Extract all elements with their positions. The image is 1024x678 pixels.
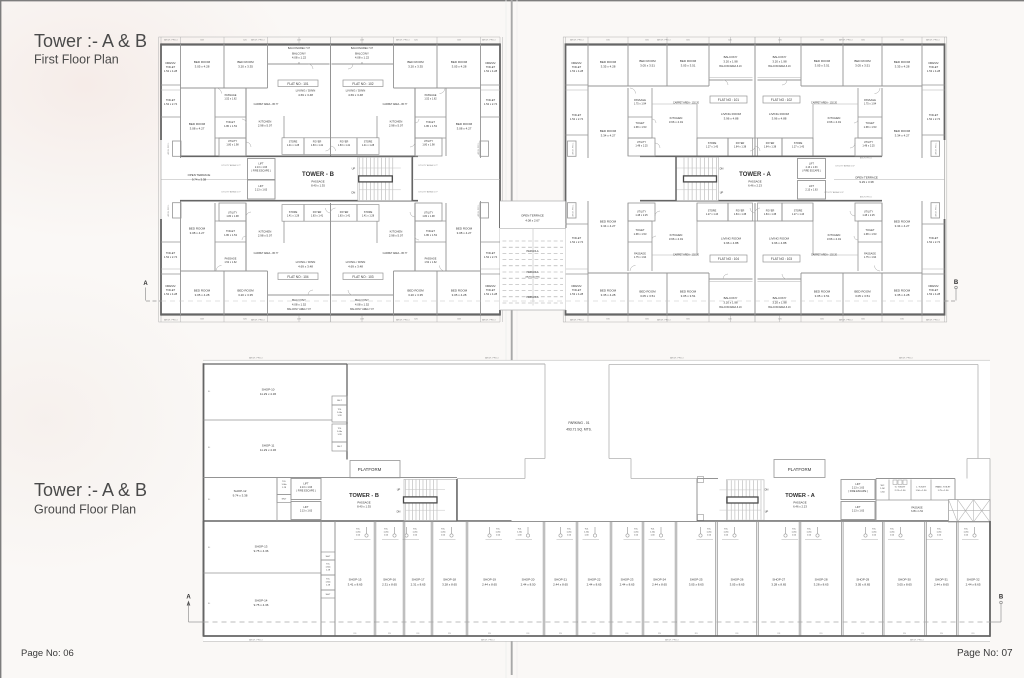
svg-text:BED ROOM3.34 x 4.27: BED ROOM3.34 x 4.27 [600, 220, 617, 228]
svg-text:BED ROOM3.05 x 4.28: BED ROOM3.05 x 4.28 [451, 60, 468, 68]
svg-text:ARCH. PROJ.: ARCH. PROJ. [485, 357, 499, 360]
svg-text:PASSAGE1.75 x 1.94: PASSAGE1.75 x 1.94 [864, 99, 877, 106]
svg-text:B: B [954, 280, 959, 286]
svg-text:SHOP-263.05 x 8.65: SHOP-263.05 x 8.65 [730, 578, 745, 587]
svg-text:SHOP-183.28 x 8.65: SHOP-183.28 x 8.65 [442, 578, 457, 587]
svg-text:BED ROOM3.20 x 3.35: BED ROOM3.20 x 3.35 [407, 60, 424, 68]
svg-text:LIVING ROOM3.96 x 4.88: LIVING ROOM3.96 x 4.88 [721, 237, 742, 245]
svg-text:ARCH. PROJ.: ARCH. PROJ. [164, 319, 178, 322]
svg-text:ARCH. PROJ.: ARCH. PROJ. [926, 39, 940, 42]
svg-text:SHOP-153.41 x 8.65: SHOP-153.41 x 8.65 [348, 578, 363, 587]
svg-text:LIVING / DINN4.69 x 3.48: LIVING / DINN4.69 x 3.48 [346, 260, 366, 268]
svg-text:63: 63 [361, 62, 363, 64]
svg-text:PLATFORM: PLATFORM [358, 467, 382, 472]
svg-text:6.46 x 2.23: 6.46 x 2.23 [748, 183, 762, 187]
svg-text:PERGOLA: PERGOLA [526, 271, 538, 274]
svg-text:ARCH. PROJ.: ARCH. PROJ. [860, 156, 872, 159]
svg-text:ARCH. PROJ.: ARCH. PROJ. [396, 319, 410, 322]
svg-text:KITCHEN3.66 x 4.01: KITCHEN3.66 x 4.01 [669, 116, 684, 124]
svg-text:SH-T: SH-T [326, 594, 331, 596]
svg-text:ARCH. PROJ.: ARCH. PROJ. [572, 142, 575, 154]
svg-text:KITCHEN2.98 x 5.07: KITCHEN2.98 x 5.07 [258, 120, 273, 128]
svg-text:SHOP-202.44 x 8.50: SHOP-202.44 x 8.50 [521, 578, 536, 587]
svg-text:Tower :- A & B: Tower :- A & B [34, 31, 147, 51]
svg-text:ARCH. PROJ.: ARCH. PROJ. [935, 204, 938, 216]
svg-text:Ground Floor Plan: Ground Floor Plan [34, 503, 136, 517]
svg-text:PASSAGE1.52 x 1.62: PASSAGE1.52 x 1.62 [224, 94, 237, 101]
svg-text:BED ROOM3.34 x 4.27: BED ROOM3.34 x 4.27 [600, 129, 617, 137]
svg-text:Tower :- A & B: Tower :- A & B [34, 480, 147, 500]
svg-text:BALCON/AREA 6.19: BALCON/AREA 6.19 [768, 65, 791, 68]
svg-text:BED ROOM3.05 x 3.51: BED ROOM3.05 x 3.51 [680, 290, 697, 298]
svg-text:PERGOLA: PERGOLA [526, 296, 538, 299]
svg-text:KITCHEN3.66 x 4.01: KITCHEN3.66 x 4.01 [827, 116, 842, 124]
svg-text:ARCH. PROJ.: ARCH. PROJ. [164, 39, 178, 42]
svg-text:4.08 x 1.22: 4.08 x 1.22 [355, 56, 370, 60]
svg-text:BED ROOM3.08 x 4.27: BED ROOM3.08 x 4.27 [456, 122, 473, 130]
svg-text:8.40 x 1.35: 8.40 x 1.35 [311, 183, 325, 187]
svg-text:LIVING ROOM3.96 x 4.88: LIVING ROOM3.96 x 4.88 [721, 112, 742, 120]
svg-text:6.46 x 2.23: 6.46 x 2.23 [793, 504, 807, 508]
svg-text:SH-T: SH-T [282, 499, 287, 501]
svg-text:TOWER - B: TOWER - B [302, 172, 335, 178]
svg-text:OPEN TERRACE: OPEN TERRACE [188, 173, 211, 177]
svg-text:ARCH. PROJ.: ARCH. PROJ. [167, 204, 170, 216]
svg-text:ARCH. PROJ.: ARCH. PROJ. [860, 195, 872, 198]
svg-text:SHOP-1011.29 x 4.36: SHOP-1011.29 x 4.36 [260, 388, 277, 397]
svg-text:4.08 x 1.52: 4.08 x 1.52 [292, 303, 307, 307]
svg-text:ARCH. PROJ.: ARCH. PROJ. [657, 319, 671, 322]
svg-text:BED ROOM3.08 x 4.27: BED ROOM3.08 x 4.27 [189, 227, 206, 235]
svg-text:ARCH. PROJ.: ARCH. PROJ. [249, 357, 263, 360]
svg-text:BED ROOM3.08 x 4.27: BED ROOM3.08 x 4.27 [456, 227, 473, 235]
svg-text:PASSAGE1.52 x 1.62: PASSAGE1.52 x 1.62 [424, 94, 437, 101]
svg-text:B4: B4 [208, 603, 210, 605]
svg-text:SH-T: SH-T [337, 400, 342, 402]
svg-text:SHOP-1111.29 x 4.36: SHOP-1111.29 x 4.36 [260, 444, 277, 453]
svg-text:KITCHEN2.98 x 5.07: KITCHEN2.98 x 5.07 [389, 120, 404, 128]
svg-text:BED ROOM3.05 x 3.51: BED ROOM3.05 x 3.51 [639, 290, 656, 298]
svg-text:ARCH. PROJ.: ARCH. PROJ. [926, 319, 940, 322]
svg-text:ARCH. PROJ.: ARCH. PROJ. [570, 319, 584, 322]
svg-text:PASSAGE6.95 x 1.52: PASSAGE6.95 x 1.52 [911, 507, 923, 514]
svg-text:ARCH. PROJ.: ARCH. PROJ. [482, 319, 496, 322]
svg-text:PERGOLA: PERGOLA [526, 250, 538, 253]
svg-text:BALCONY AREA 7.07: BALCONY AREA 7.07 [350, 308, 374, 311]
svg-text:PASSAGE1.52 x 1.62: PASSAGE1.52 x 1.62 [424, 257, 437, 264]
svg-text:9.29 x 3.38: 9.29 x 3.38 [859, 180, 874, 184]
svg-text:UP: UP [720, 191, 724, 195]
svg-text:DN: DN [352, 191, 356, 195]
svg-text:BED ROOM3.05 x 3.51: BED ROOM3.05 x 3.51 [680, 59, 697, 67]
svg-text:BED ROOM3.20 x 3.35: BED ROOM3.20 x 3.35 [237, 60, 254, 68]
svg-text:CARPET AREA - 102.20: CARPET AREA - 102.20 [673, 102, 700, 105]
svg-text:Page No: 06: Page No: 06 [21, 648, 74, 659]
svg-text:UTILITY AREA 3.77: UTILITY AREA 3.77 [221, 191, 241, 194]
svg-text:BED ROOM3.05 x 3.51: BED ROOM3.05 x 3.51 [854, 59, 871, 67]
svg-text:KITCHEN2.98 x 5.07: KITCHEN2.98 x 5.07 [258, 229, 273, 237]
svg-text:ARCH. PROJ.: ARCH. PROJ. [167, 142, 170, 154]
svg-text:CARPET AREA - 102.20: CARPET AREA - 102.20 [673, 254, 700, 257]
svg-text:ARCH. PROJ.: ARCH. PROJ. [396, 39, 410, 42]
svg-text:4.08 x 2.67: 4.08 x 2.67 [525, 219, 540, 223]
svg-text:3.20 x 1.98: 3.20 x 1.98 [723, 60, 738, 64]
svg-text:A: A [143, 281, 148, 287]
svg-text:KITCHEN3.66 x 4.01: KITCHEN3.66 x 4.01 [669, 233, 684, 241]
svg-text:BED ROOM3.05 x 3.51: BED ROOM3.05 x 3.51 [814, 59, 831, 67]
svg-text:BALCON/AREA 7.07: BALCON/AREA 7.07 [351, 47, 374, 50]
svg-text:KITCHEN3.66 x 4.01: KITCHEN3.66 x 4.01 [827, 233, 842, 241]
svg-text:FLAT NO : 104: FLAT NO : 104 [287, 275, 308, 279]
svg-text:FLAT NO : 102: FLAT NO : 102 [352, 82, 373, 86]
svg-text:BED ROOM3.05 x 3.51: BED ROOM3.05 x 3.51 [639, 59, 656, 67]
svg-text:ARCH. PROJ.: ARCH. PROJ. [570, 39, 584, 42]
svg-text:First Floor Plan: First Floor Plan [34, 53, 119, 67]
svg-text:ARCH. PROJ.: ARCH. PROJ. [657, 39, 671, 42]
svg-text:BALCON/AREA 6.19: BALCON/AREA 6.19 [719, 306, 742, 309]
svg-text:ARCH. PROJ.: ARCH. PROJ. [910, 638, 924, 641]
svg-text:(BURJ AL HR): (BURJ AL HR) [525, 276, 539, 279]
svg-text:BED ROOM3.05 x 3.51: BED ROOM3.05 x 3.51 [854, 290, 871, 298]
svg-text:FLAT NO : 102: FLAT NO : 102 [771, 98, 792, 102]
svg-text:BALCON/AREA 6.19: BALCON/AREA 6.19 [768, 306, 791, 309]
svg-text:63: 63 [298, 62, 300, 64]
svg-text:SHOP-222.44 x 8.65: SHOP-222.44 x 8.65 [587, 578, 602, 587]
svg-text:BED ROOM3.35 x 4.28: BED ROOM3.35 x 4.28 [894, 289, 911, 297]
svg-text:UTILITY AREA 3.77: UTILITY AREA 3.77 [418, 191, 438, 194]
svg-text:BED ROOM3.05 x 4.28: BED ROOM3.05 x 4.28 [451, 289, 468, 297]
svg-text:FLAT NO : 101: FLAT NO : 101 [718, 98, 739, 102]
svg-text:BED ROOM3.34 x 4.27: BED ROOM3.34 x 4.27 [894, 129, 911, 137]
svg-text:SHOP-149.75 x 4.36: SHOP-149.75 x 4.36 [254, 599, 269, 608]
svg-text:ARCH. PROJ.: ARCH. PROJ. [251, 39, 265, 42]
svg-text:TOWER - B: TOWER - B [349, 493, 379, 499]
svg-text:BED ROOM3.20 x 3.35: BED ROOM3.20 x 3.35 [407, 289, 424, 297]
svg-text:B: B [999, 595, 1004, 601]
svg-text:KITCHEN2.98 x 5.07: KITCHEN2.98 x 5.07 [389, 229, 404, 237]
svg-text:L. TOILET1.50 x 1.50: L. TOILET1.50 x 1.50 [916, 487, 928, 492]
svg-text:UP: UP [765, 510, 769, 514]
svg-text:ARCH. PROJ.: ARCH. PROJ. [477, 142, 480, 154]
svg-text:3.20 x 1.98: 3.20 x 1.98 [772, 60, 787, 64]
svg-text:Page No: 07: Page No: 07 [957, 648, 1013, 659]
svg-text:B4: B4 [208, 391, 210, 393]
svg-text:SHOP-172.31 x 8.65: SHOP-172.31 x 8.65 [411, 578, 426, 587]
svg-text:BALCONY: BALCONY [773, 296, 787, 300]
svg-text:A: A [186, 595, 191, 601]
svg-text:8.40 x 1.35: 8.40 x 1.35 [357, 504, 371, 508]
svg-text:UTILITY AREA 3.37: UTILITY AREA 3.37 [835, 165, 855, 168]
svg-text:PLATFORM: PLATFORM [788, 467, 812, 472]
svg-text:FLAT NO : 103: FLAT NO : 103 [352, 275, 373, 279]
svg-text:PASSAGE1.52 x 1.62: PASSAGE1.52 x 1.62 [224, 257, 237, 264]
svg-text:ARCH. PROJ.: ARCH. PROJ. [839, 39, 853, 42]
svg-text:TOWER - A: TOWER - A [785, 493, 815, 499]
svg-text:BALCONY: BALCONY [355, 298, 369, 302]
svg-text:PASSAGE1.75 x 1.94: PASSAGE1.75 x 1.94 [864, 252, 877, 259]
svg-text:ARCH. PROJ.: ARCH. PROJ. [251, 319, 265, 322]
svg-text:BALCONY: BALCONY [724, 55, 738, 59]
svg-text:SH-T: SH-T [337, 446, 342, 448]
svg-text:PASSAGE1.75 x 1.94: PASSAGE1.75 x 1.94 [634, 252, 647, 259]
svg-text:SH-T: SH-T [326, 556, 331, 558]
svg-text:BALCON/AREA 7.07: BALCON/AREA 7.07 [288, 47, 311, 50]
svg-text:SHOP-293.05 x 8.65: SHOP-293.05 x 8.65 [855, 578, 870, 587]
svg-text:4.08 x 1.22: 4.08 x 1.22 [292, 56, 307, 60]
svg-text:LIVING / DINN4.69 x 3.48: LIVING / DINN4.69 x 3.48 [296, 260, 316, 268]
svg-text:DN: DN [720, 166, 724, 170]
svg-text:BED ROOM3.34 x 4.27: BED ROOM3.34 x 4.27 [894, 220, 911, 228]
svg-text:G. TOILET2.74 x 1.50: G. TOILET2.74 x 1.50 [895, 487, 907, 492]
svg-text:BED ROOM3.08 x 4.27: BED ROOM3.08 x 4.27 [189, 122, 206, 130]
svg-text:SHOP-129.74 x 3.38: SHOP-129.74 x 3.38 [233, 489, 248, 498]
svg-text:CARPET AREA - 86.77: CARPET AREA - 86.77 [383, 103, 408, 106]
svg-text:DN: DN [765, 488, 769, 492]
svg-text:ARCH. PROJ.: ARCH. PROJ. [572, 204, 575, 216]
svg-text:B4: B4 [208, 499, 210, 501]
svg-text:CARPET AREA - 86.77: CARPET AREA - 86.77 [254, 103, 279, 106]
svg-text:SHOP-162.31 x 8.65: SHOP-162.31 x 8.65 [382, 578, 397, 587]
svg-text:BALCONY AREA 7.07: BALCONY AREA 7.07 [287, 308, 311, 311]
svg-text:ARCH. PROJ.: ARCH. PROJ. [249, 638, 263, 641]
svg-text:SHOP-303.05 x 8.65: SHOP-303.05 x 8.65 [897, 578, 912, 587]
svg-text:LIVING ROOM3.96 x 4.88: LIVING ROOM3.96 x 4.88 [769, 237, 790, 245]
svg-text:SHOP-253.05 x 8.65: SHOP-253.05 x 8.65 [689, 578, 704, 587]
svg-text:SHOP-212.44 x 8.65: SHOP-212.44 x 8.65 [553, 578, 568, 587]
svg-text:FLAT NO : 101: FLAT NO : 101 [287, 82, 308, 86]
svg-text:ARCH. PROJ.: ARCH. PROJ. [481, 638, 495, 641]
svg-text:LIVING / DINN4.69 x 3.48: LIVING / DINN4.69 x 3.48 [296, 89, 316, 97]
svg-text:DN: DN [397, 510, 401, 514]
svg-text:LIVING / DINN4.69 x 3.48: LIVING / DINN4.69 x 3.48 [346, 89, 366, 97]
svg-text:UTILITY AREA 3.37: UTILITY AREA 3.37 [824, 191, 844, 194]
svg-text:UP: UP [397, 488, 401, 492]
svg-text:PASSAGE1.75 x 1.94: PASSAGE1.75 x 1.94 [634, 99, 647, 106]
svg-text:SHOP-139.75 x 4.36: SHOP-139.75 x 4.36 [254, 545, 269, 554]
svg-text:SHOP-242.44 x 8.65: SHOP-242.44 x 8.65 [652, 578, 667, 587]
svg-text:ARCH. PROJ.: ARCH. PROJ. [665, 638, 679, 641]
svg-text:BED ROOM3.05 x 3.51: BED ROOM3.05 x 3.51 [814, 290, 831, 298]
svg-text:SHOP-192.44 x 8.65: SHOP-192.44 x 8.65 [482, 578, 497, 587]
svg-text:SHOP-283.28 x 8.65: SHOP-283.28 x 8.65 [814, 578, 829, 587]
svg-text:B4: B4 [208, 547, 210, 549]
svg-text:ARCH. PROJ.: ARCH. PROJ. [899, 357, 913, 360]
svg-text:CARPET AREA - 86.77: CARPET AREA - 86.77 [383, 252, 408, 255]
svg-text:9.74 x 3.38: 9.74 x 3.38 [192, 178, 207, 182]
svg-text:BED ROOM3.35 x 4.28: BED ROOM3.35 x 4.28 [600, 60, 617, 68]
svg-text:BALCONY: BALCONY [292, 298, 306, 302]
svg-text:SHOP-232.44 x 8.65: SHOP-232.44 x 8.65 [620, 578, 635, 587]
svg-text:ARCH. PROJ.: ARCH. PROJ. [839, 319, 853, 322]
svg-text:ARCH. PROJ.: ARCH. PROJ. [670, 357, 684, 360]
svg-text:BALCONY: BALCONY [724, 296, 738, 300]
svg-text:BED ROOM3.35 x 4.28: BED ROOM3.35 x 4.28 [894, 60, 911, 68]
svg-text:BALCON/AREA 6.19: BALCON/AREA 6.19 [719, 65, 742, 68]
svg-text:CARPET AREA - 86.77: CARPET AREA - 86.77 [254, 252, 279, 255]
svg-text:OPEN TERRACE: OPEN TERRACE [521, 214, 544, 218]
svg-text:CARPET AREA - 102.20: CARPET AREA - 102.20 [811, 102, 838, 105]
svg-text:4.08 x 1.52: 4.08 x 1.52 [355, 303, 370, 307]
svg-text:UTILITY AREA 3.77: UTILITY AREA 3.77 [221, 164, 241, 167]
svg-text:SHOP-273.28 x 8.65: SHOP-273.28 x 8.65 [771, 578, 786, 587]
svg-text:ARCH. PROJ.: ARCH. PROJ. [482, 39, 496, 42]
svg-text:UTILITY AREA 3.77: UTILITY AREA 3.77 [418, 164, 438, 167]
svg-text:FLAT NO : 103: FLAT NO : 103 [771, 257, 792, 261]
svg-text:LIVING ROOM3.96 x 4.88: LIVING ROOM3.96 x 4.88 [769, 112, 790, 120]
svg-text:ARCH. PROJ.: ARCH. PROJ. [477, 204, 480, 216]
svg-text:BED ROOM3.20 x 3.35: BED ROOM3.20 x 3.35 [237, 289, 254, 297]
svg-text:SHOP-312.44 x 8.65: SHOP-312.44 x 8.65 [934, 578, 949, 587]
svg-text:FLAT NO : 104: FLAT NO : 104 [718, 257, 739, 261]
svg-text:SHOP-322.44 x 8.65: SHOP-322.44 x 8.65 [966, 578, 981, 587]
svg-text:ARCH. PROJ.: ARCH. PROJ. [935, 142, 938, 154]
svg-text:BED ROOM3.05 x 4.28: BED ROOM3.05 x 4.28 [194, 60, 211, 68]
svg-text:B4: B4 [208, 447, 210, 449]
svg-text:OPEN TERRACE: OPEN TERRACE [855, 176, 878, 180]
svg-text:BED ROOM3.05 x 4.28: BED ROOM3.05 x 4.28 [194, 289, 211, 297]
svg-text:BED ROOM3.35 x 4.28: BED ROOM3.35 x 4.28 [600, 289, 617, 297]
svg-text:CARPET AREA - 102.20: CARPET AREA - 102.20 [811, 254, 838, 257]
svg-text:BALCONY: BALCONY [773, 55, 787, 59]
svg-text:TOWER - A: TOWER - A [739, 172, 771, 178]
svg-text:UP: UP [352, 166, 356, 170]
